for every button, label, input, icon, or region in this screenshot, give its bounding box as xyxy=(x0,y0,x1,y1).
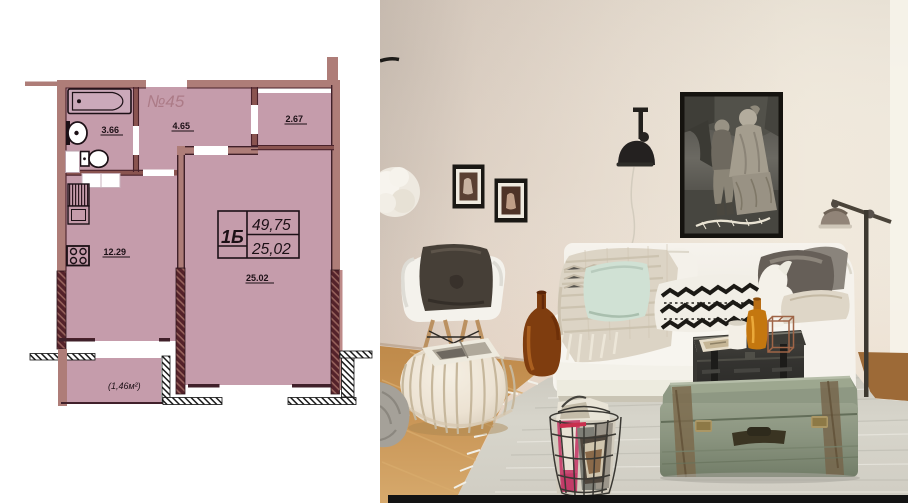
svg-text:1Б: 1Б xyxy=(221,227,244,247)
svg-text:2.67: 2.67 xyxy=(286,114,304,124)
svg-text:3.66: 3.66 xyxy=(102,125,120,135)
svg-text:25,02: 25,02 xyxy=(251,241,291,258)
svg-text:(1,46м²): (1,46м²) xyxy=(108,381,141,391)
svg-text:12.29: 12.29 xyxy=(104,247,127,257)
svg-text:4.65: 4.65 xyxy=(173,121,191,131)
svg-text:49,75: 49,75 xyxy=(252,217,291,234)
svg-text:№45: №45 xyxy=(147,92,185,111)
svg-text:25.02: 25.02 xyxy=(246,273,269,283)
